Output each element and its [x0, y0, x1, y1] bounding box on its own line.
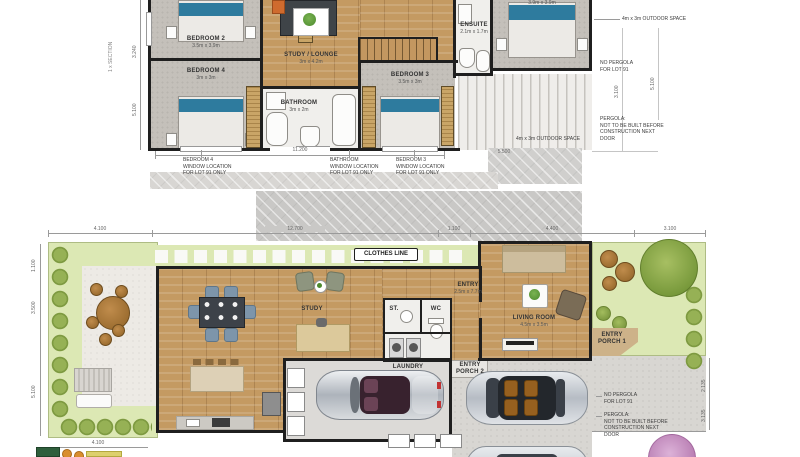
garage-cabinet [287, 392, 305, 412]
study-desk [296, 324, 350, 352]
dim-right-1: 2.135 [701, 366, 709, 392]
room-label-study-lounge: STUDY / LOUNGE [270, 52, 352, 59]
window-bedroom4 [180, 146, 242, 152]
lounge-chair-orange [272, 0, 285, 14]
tree-large [640, 239, 698, 297]
bedside-table [166, 133, 177, 146]
clothes-line-label: CLOTHES LINE [354, 248, 418, 261]
store-label: ST. [386, 306, 402, 313]
garage-door-panel [388, 434, 410, 448]
dimension-line [709, 358, 710, 430]
room-dims-bedroom3: 3.5m x 3m [378, 80, 442, 86]
dining-chair [224, 328, 238, 342]
study-plant [317, 283, 322, 288]
wall-segment [360, 60, 458, 63]
bedside-table [577, 38, 588, 51]
dimension-left-upper: 3.240 [132, 30, 140, 58]
room-label-bathroom: BATHROOM [268, 100, 330, 107]
pergola-note-ground: PERGOLA: NOT TO BE BUILT BEFORE CONSTRUC… [604, 412, 670, 438]
bed-bedroom1-cover [509, 5, 575, 20]
room-dims-study-lounge: 3m x 4.2m [270, 60, 352, 66]
dim-top-1: 4.100 [70, 226, 130, 232]
room-label-bedroom2: BEDROOM 2 [166, 36, 246, 43]
siteplan-fragment-green [36, 447, 60, 457]
wall-segment [453, 73, 493, 76]
sedan-seat [524, 380, 538, 397]
sedan-seat [524, 399, 538, 416]
study-armchair [295, 271, 315, 292]
room-dims-bathroom: 3m x 2m [268, 108, 330, 114]
sedan-rear-window [556, 379, 565, 417]
garden-bench [76, 394, 112, 408]
sports-car-seat [364, 379, 378, 393]
wall-segment [383, 298, 385, 362]
shrub-row [60, 418, 152, 436]
dimension-line [48, 233, 706, 234]
wall-segment [478, 241, 592, 244]
dim-right-2: 3.135 [701, 396, 709, 422]
wall-segment [383, 298, 452, 300]
room-label-bedroom3: BEDROOM 3 [378, 72, 442, 79]
bed-bedroom3-cover [381, 99, 439, 112]
siteplan-fragment-orange [74, 451, 84, 457]
lounge-plant [303, 13, 316, 26]
window-note-bedroom3: BEDROOM 3 WINDOW LOCATION FOR LOT 91 ONL… [396, 157, 456, 177]
dim-bottom: 4.100 [68, 440, 128, 446]
kitchen-cooktop [212, 418, 230, 427]
window-bedroom3 [382, 146, 438, 152]
patio-chair [99, 333, 112, 346]
kitchen-fridge [262, 392, 281, 416]
hedge-column-right [684, 284, 704, 372]
dimension-tick [705, 230, 706, 237]
dimension-line [58, 447, 148, 448]
siteplan-fragment-yellow [86, 451, 122, 457]
dimension-tick [634, 230, 635, 237]
kitchen-island [190, 366, 244, 392]
leader-line [349, 150, 350, 157]
study-armchair [325, 271, 345, 292]
laundry-label: LAUNDRY [388, 364, 428, 371]
paving-stones [155, 250, 465, 263]
study-label: STUDY [290, 306, 334, 313]
living-room-dims: 4.5m x 3.5m [506, 323, 562, 329]
wall-segment [589, 0, 592, 71]
wall-segment [420, 298, 422, 334]
garden-lounger [74, 368, 112, 392]
washing-machine-drum [392, 343, 401, 352]
dim-top-4: 4.400 [522, 226, 582, 232]
leader-line [596, 396, 602, 397]
garage-door-panel [414, 434, 436, 448]
boundary-line [658, 28, 659, 120]
no-pergola-note-ground: NO PERGOLA FOR LOT 91 [604, 392, 656, 405]
kitchen-stools [193, 359, 241, 365]
window-bedroom2 [146, 12, 152, 46]
bed-bedroom2-cover [179, 3, 243, 16]
wall-segment [490, 0, 493, 73]
dimension-tick [152, 230, 153, 237]
bedside-table [245, 26, 256, 39]
patio-chair [86, 316, 99, 329]
dim-left-2: 3.500 [31, 288, 39, 314]
room-dims-ensuite: 2.1m x 1.7m [454, 30, 494, 36]
tv [506, 341, 534, 345]
sports-car [316, 370, 444, 420]
outdoor-table [600, 250, 618, 268]
ensuite-toilet [459, 48, 475, 68]
wall-segment [478, 241, 481, 269]
outdoor-space-note-side: 4m x 3m OUTDOOR SPACE [516, 136, 586, 143]
outdoor-space-note-top: 4m x 3m OUTDOOR SPACE [622, 16, 698, 23]
sedan-seat [504, 380, 518, 397]
ensuite-shower [458, 4, 472, 24]
window-note-bathroom: BATHROOM WINDOW LOCATION FOR LOT 91 ONLY [330, 157, 390, 177]
coffee-table-plant [529, 289, 540, 300]
dining-table [199, 297, 245, 328]
wall-segment [156, 430, 286, 433]
wall-segment [383, 360, 452, 362]
floorplan-canvas: BEDROOM 2 3.5m x 3.9m BEDROOM 4 3m x 3m … [0, 0, 800, 457]
wall-segment [479, 318, 482, 361]
leader-line [596, 416, 602, 417]
dim-top-2: 12.700 [265, 226, 325, 232]
wall-segment [453, 0, 456, 78]
leader-line [201, 150, 202, 157]
patio-chair [90, 283, 103, 296]
dimension-right-inner: 3.100 [614, 70, 622, 98]
sports-car-taillight [437, 401, 441, 408]
sports-car-taillight [437, 382, 441, 389]
hedge-column [50, 244, 70, 422]
dryer-drum [409, 343, 418, 352]
bedside-table [496, 38, 507, 51]
patio-chair [115, 285, 128, 298]
wardrobe [441, 86, 454, 146]
ensuite-vanity [476, 50, 490, 72]
sofa-backrest [503, 246, 565, 252]
wall-segment [358, 60, 361, 151]
dimension-tick [48, 230, 49, 237]
living-room-label: LIVING ROOM [506, 315, 562, 322]
bathroom-vanity [266, 112, 288, 146]
sedan-seat [504, 399, 518, 416]
wall-segment [283, 358, 286, 442]
sports-car-seat [364, 397, 378, 411]
garage-door-panel [440, 434, 462, 448]
room-dims-bedroom1: 3.9m x 3.9m [508, 1, 576, 7]
dim-top-3: 1.100 [424, 226, 484, 232]
garage-cabinet [287, 416, 305, 436]
entry-porch1-label: ENTRY PORCH 1 [592, 332, 632, 346]
wall-segment [450, 298, 452, 362]
dimension-line [155, 155, 445, 156]
wall-segment [156, 266, 159, 433]
shrub [596, 306, 611, 321]
garage-cabinet [287, 368, 305, 388]
toilet [300, 126, 320, 148]
wall-segment [383, 332, 452, 334]
room-dims-bedroom4: 3m x 3m [166, 76, 246, 82]
dim-left-1: 1.100 [31, 246, 39, 272]
room-dims-bedroom2: 3.5m x 3.9m [166, 44, 246, 50]
wc-label: WC [428, 306, 444, 313]
wall-segment [156, 266, 482, 269]
wall-segment [150, 58, 262, 61]
wardrobe [362, 86, 376, 148]
wall-segment [262, 86, 360, 89]
dim-top-5: 3.100 [640, 226, 700, 232]
entry-porch2-label: ENTRY PORCH 2 [450, 362, 490, 376]
sports-car-windshield [350, 377, 360, 413]
sedan-car [466, 371, 588, 425]
room-label-ensuite: ENSUITE [454, 22, 494, 29]
outdoor-table [615, 262, 635, 282]
sports-car-rear-deck [412, 376, 438, 414]
window-note-bedroom4: BEDROOM 4 WINDOW LOCATION FOR LOT 91 ONL… [183, 157, 243, 177]
siteplan-fragment-orange [62, 449, 72, 457]
leader-line [414, 150, 415, 157]
partial-car [466, 446, 588, 457]
room-label-bedroom4: BEDROOM 4 [166, 68, 246, 75]
bathtub [332, 94, 356, 146]
dimension-tick [155, 151, 156, 159]
no-pergola-note-upper: NO PERGOLA FOR LOT 91 [600, 60, 652, 73]
wardrobe [246, 86, 261, 148]
bed-bedroom4-cover [179, 99, 243, 112]
entry-dims: 2.5m x 7.7m [446, 290, 490, 296]
boundary-line [592, 151, 658, 152]
patio-chair [112, 324, 125, 337]
dim-left-3: 5.100 [31, 372, 39, 398]
wall-segment [260, 0, 263, 151]
wall-segment [478, 358, 592, 361]
dimension-left-lower: 5.100 [132, 88, 140, 116]
dimension-overall-width: 11.200 [270, 147, 330, 153]
dimension-line [140, 0, 141, 150]
dimension-outdoor-block: 5.500 [484, 149, 524, 155]
leader-line [594, 19, 620, 20]
pergola-note-upper: PERGOLA: NOT TO BE BUILT BEFORE CONSTRUC… [600, 116, 666, 142]
dimension-line [40, 244, 41, 436]
entry-label: ENTRY [446, 282, 490, 289]
wall-segment [490, 68, 592, 71]
dining-chair [205, 328, 219, 342]
kitchen-sink [186, 419, 200, 427]
section-note: 1 x SECTION [108, 22, 117, 72]
study-desk-chair [316, 318, 327, 327]
outdoor-chair [602, 276, 617, 291]
